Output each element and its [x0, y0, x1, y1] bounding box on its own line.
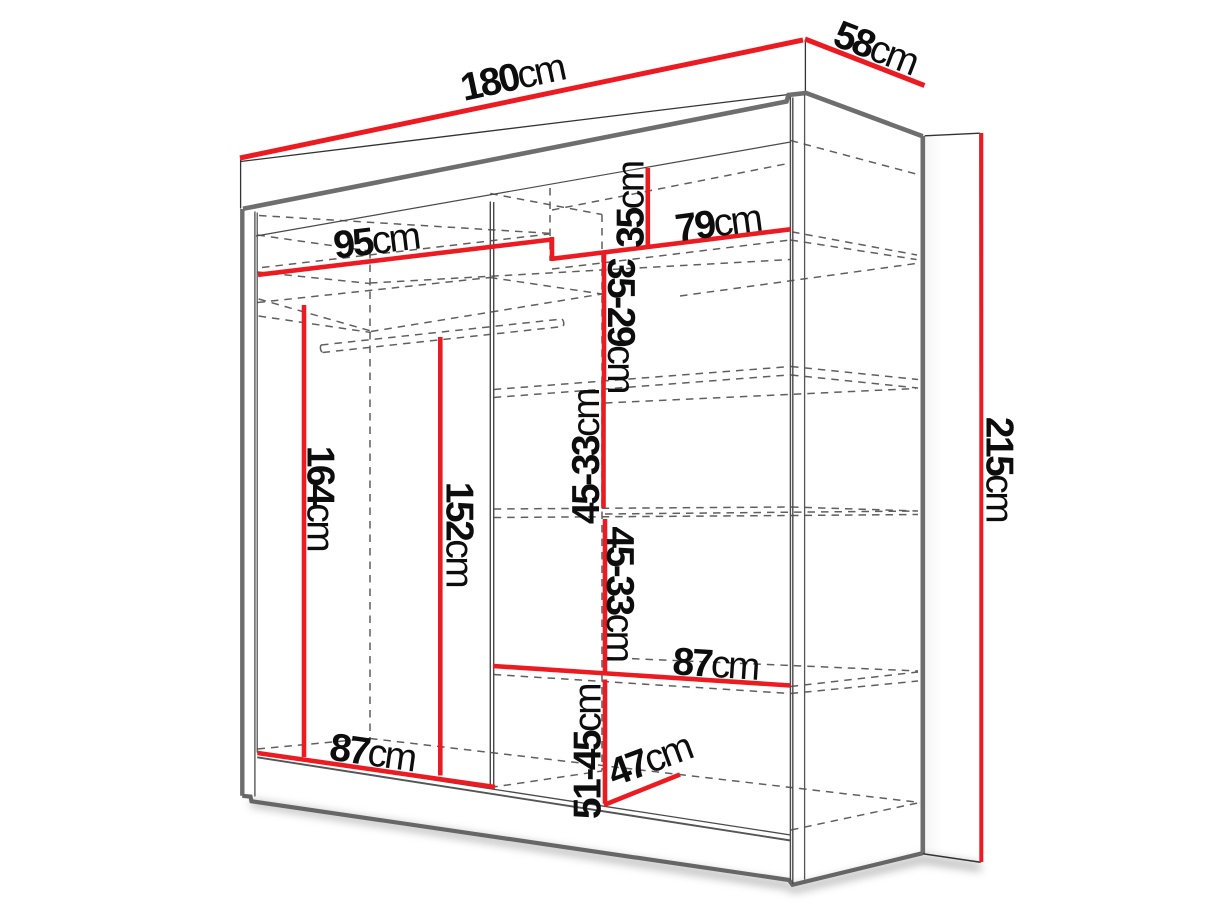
svg-text:164cm: 164cm: [299, 446, 342, 551]
svg-text:45-33cm: 45-33cm: [598, 526, 641, 660]
svg-text:152cm: 152cm: [438, 482, 481, 587]
svg-text:58cm: 58cm: [828, 13, 923, 84]
svg-text:45-33cm: 45-33cm: [565, 390, 608, 524]
svg-text:87cm: 87cm: [327, 726, 418, 780]
svg-text:51-45cm: 51-45cm: [567, 685, 610, 819]
svg-text:215cm: 215cm: [978, 417, 1021, 522]
svg-text:79cm: 79cm: [673, 197, 763, 251]
svg-text:95cm: 95cm: [331, 215, 421, 268]
svg-text:87cm: 87cm: [671, 640, 759, 688]
svg-text:35cm: 35cm: [610, 162, 653, 247]
svg-text:35-29cm: 35-29cm: [599, 258, 642, 392]
